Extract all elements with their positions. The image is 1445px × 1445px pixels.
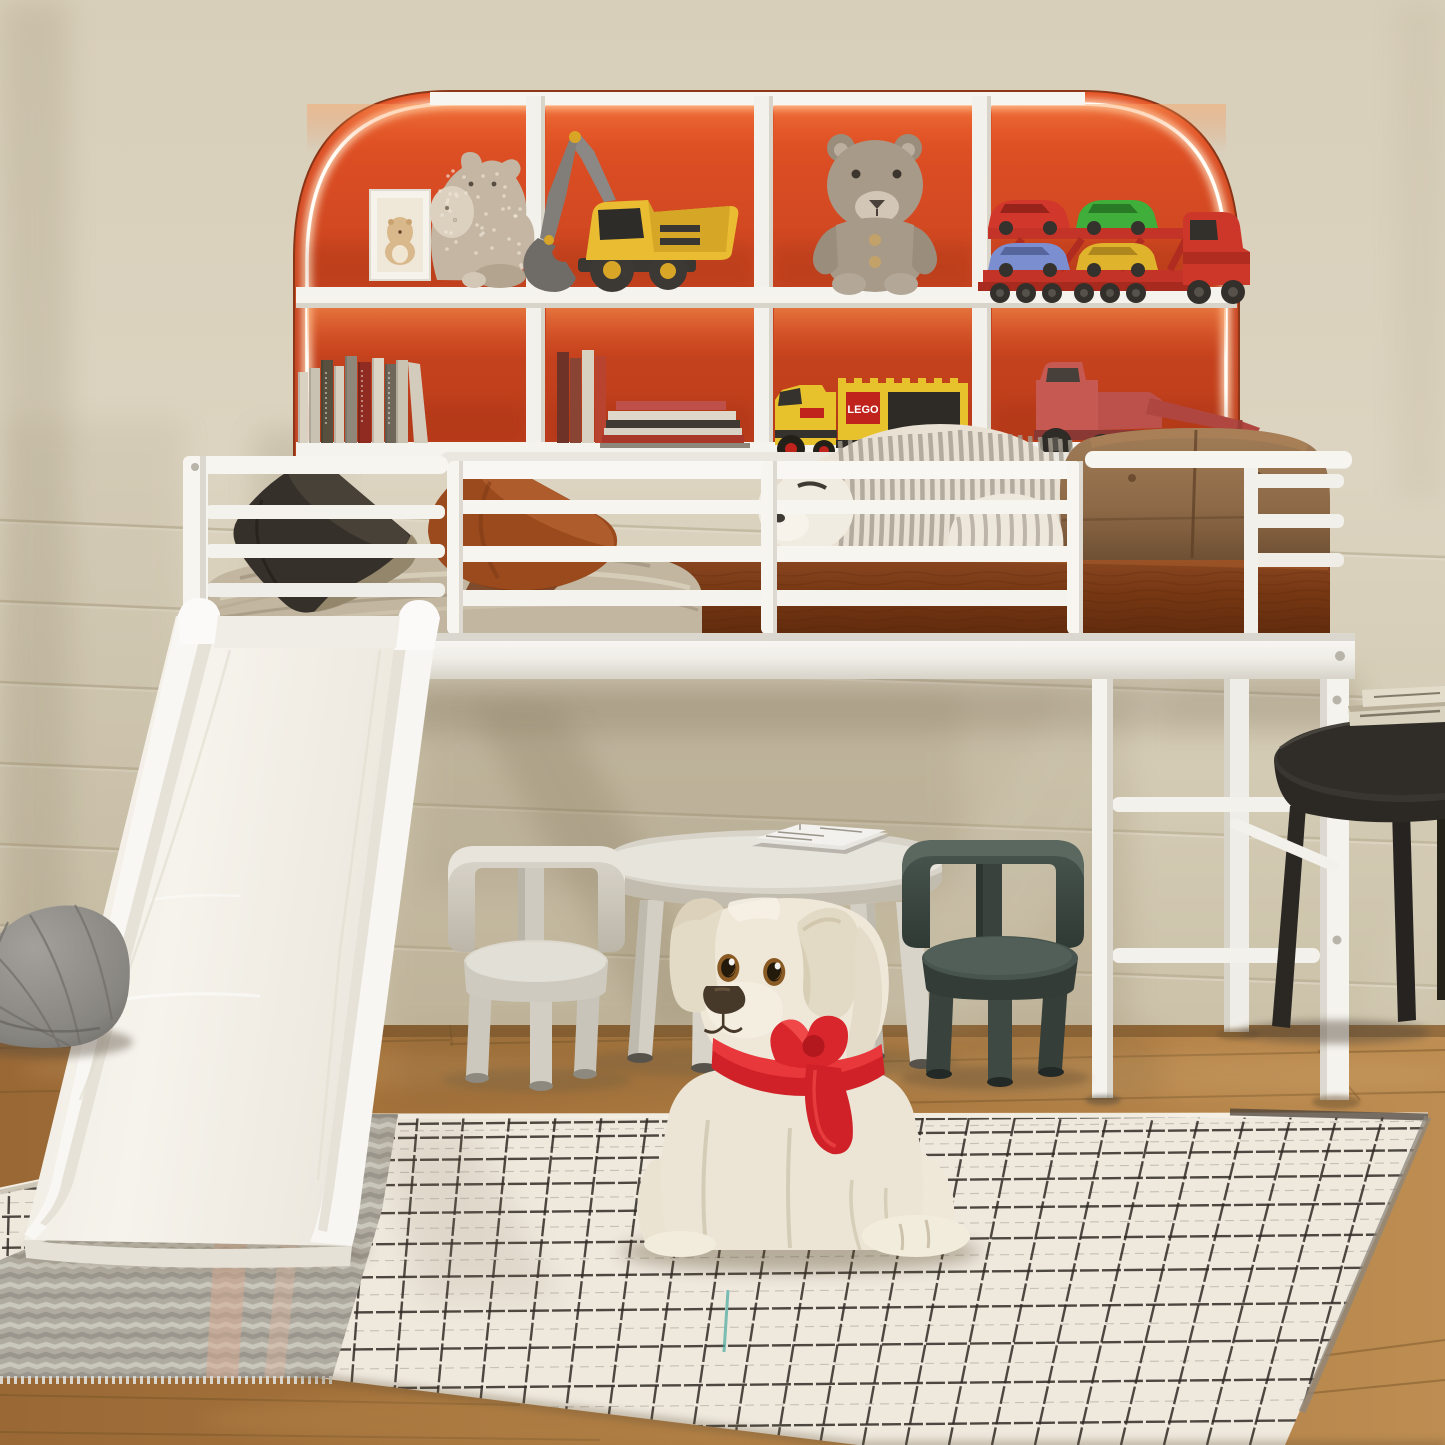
svg-text:LEGO: LEGO (847, 404, 879, 416)
